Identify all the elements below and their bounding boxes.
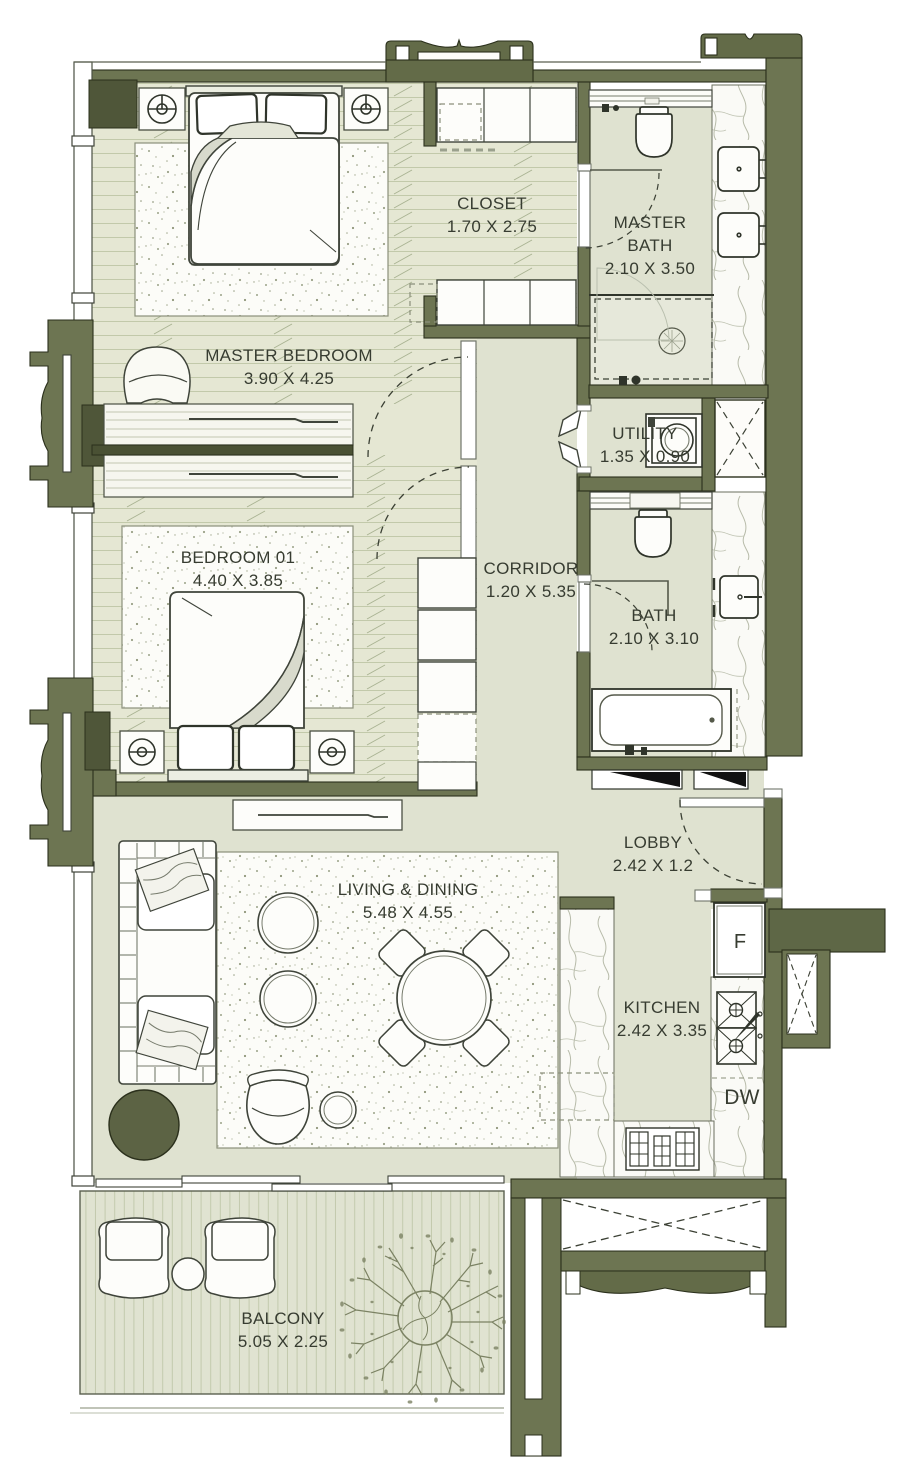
svg-text:MASTER: MASTER — [614, 213, 687, 232]
svg-text:UTILITY: UTILITY — [612, 424, 677, 443]
svg-text:1.20 X 5.35: 1.20 X 5.35 — [486, 582, 576, 601]
svg-text:LOBBY: LOBBY — [624, 833, 682, 852]
svg-text:5.05 X 2.25: 5.05 X 2.25 — [238, 1332, 328, 1351]
svg-text:LIVING & DINING: LIVING & DINING — [338, 880, 479, 899]
svg-text:2.42 X 1.2: 2.42 X 1.2 — [613, 856, 694, 875]
svg-text:4.40 X 3.85: 4.40 X 3.85 — [193, 571, 283, 590]
svg-text:F: F — [734, 931, 746, 953]
svg-text:BATH: BATH — [631, 606, 676, 625]
svg-text:3.90 X 4.25: 3.90 X 4.25 — [244, 369, 334, 388]
svg-text:BATH: BATH — [627, 236, 672, 255]
svg-text:2.10 X 3.50: 2.10 X 3.50 — [605, 259, 695, 278]
svg-text:MASTER BEDROOM: MASTER BEDROOM — [205, 346, 373, 365]
svg-text:KITCHEN: KITCHEN — [624, 998, 701, 1017]
svg-text:CLOSET: CLOSET — [457, 194, 527, 213]
svg-text:1.70 X 2.75: 1.70 X 2.75 — [447, 217, 537, 236]
svg-text:1.35 X 0.90: 1.35 X 0.90 — [600, 447, 690, 466]
svg-text:BEDROOM 01: BEDROOM 01 — [181, 548, 295, 567]
svg-text:5.48 X 4.55: 5.48 X 4.55 — [363, 903, 453, 922]
svg-text:BALCONY: BALCONY — [241, 1309, 324, 1328]
svg-text:CORRIDOR: CORRIDOR — [484, 559, 579, 578]
svg-text:2.42 X 3.35: 2.42 X 3.35 — [617, 1021, 707, 1040]
svg-text:DW: DW — [724, 1086, 760, 1109]
svg-text:2.10 X 3.10: 2.10 X 3.10 — [609, 629, 699, 648]
